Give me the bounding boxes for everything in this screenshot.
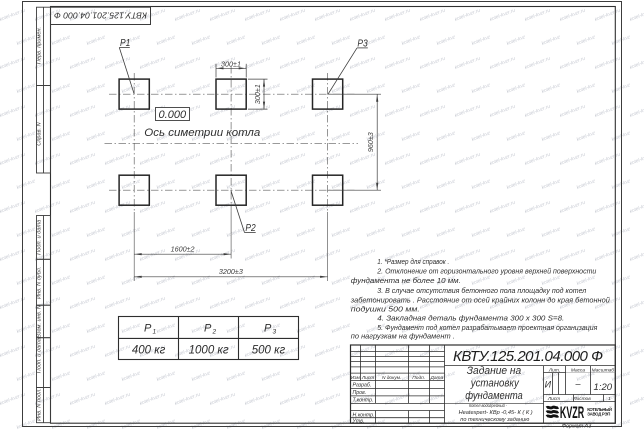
svg-text:2: 2 (212, 329, 217, 336)
svg-text:0.000: 0.000 (159, 109, 187, 121)
svg-text:Разраб.: Разраб. (353, 383, 372, 389)
svg-text:3: 3 (273, 329, 277, 336)
svg-text:Подп. и дата: Подп. и дата (37, 338, 43, 373)
svg-text:Утв.: Утв. (353, 418, 365, 424)
svg-text:Лит.: Лит. (548, 367, 560, 373)
svg-text:Котел водогрейный -: Котел водогрейный - (469, 402, 507, 409)
svg-text:Дата: Дата (429, 375, 443, 381)
svg-text:1000 кг: 1000 кг (189, 345, 229, 357)
svg-text:КВТУ.125.201.04.000 Ф: КВТУ.125.201.04.000 Ф (453, 348, 603, 365)
svg-text:ЗАВОД РЭП: ЗАВОД РЭП (587, 411, 610, 416)
svg-text:установку: установку (470, 378, 519, 390)
svg-text:Лист: Лист (361, 375, 374, 381)
svg-text:Масштаб: Масштаб (592, 367, 615, 373)
svg-text:P1: P1 (120, 38, 130, 49)
svg-text:Лист: Лист (547, 396, 560, 402)
svg-text:Н.контр.: Н.контр. (353, 412, 375, 418)
svg-text:P3: P3 (357, 38, 368, 49)
svg-text:–: – (574, 379, 581, 389)
svg-text:2. Отклонение от горизонтально: 2. Отклонение от горизонтального уровня … (376, 268, 596, 276)
svg-text:Взам. инв. N: Взам. инв. N (37, 304, 43, 338)
svg-text:Изм.: Изм. (351, 375, 361, 381)
svg-text:P2: P2 (245, 223, 256, 234)
svg-text:подушки 500 мм.: подушки 500 мм. (351, 306, 420, 314)
svg-text:1:20: 1:20 (594, 382, 613, 393)
svg-text:забетонировать . Расстояние от: забетонировать . Расстояние от осей край… (350, 296, 610, 304)
svg-text:1: 1 (153, 329, 157, 336)
svg-text:P: P (204, 323, 212, 335)
svg-text:Т.контр.: Т.контр. (353, 398, 374, 404)
svg-text:4. Закладная деталь фундамента: 4. Закладная деталь фундамента 300 x 300… (377, 315, 564, 323)
svg-text:Инв. N дубл.: Инв. N дубл. (37, 267, 43, 299)
svg-text:1. *Размер для справок .: 1. *Размер для справок . (377, 258, 449, 266)
svg-text:1: 1 (608, 396, 611, 402)
svg-text:5. Фундамент под котел разраба: 5. Фундамент под котел разрабатывает про… (377, 324, 597, 332)
svg-text:500 кг: 500 кг (252, 345, 286, 357)
svg-text:И: И (545, 380, 552, 390)
svg-text:Подп. и дата: Подп. и дата (37, 220, 43, 255)
svg-text:400 кг: 400 кг (132, 345, 166, 357)
svg-text:3. В случае отсутствия бетонно: 3. В случае отсутствия бетонного пола пл… (377, 287, 586, 295)
svg-text:Инв. N подл.: Инв. N подл. (37, 388, 43, 421)
svg-text:Перв. примен.: Перв. примен. (37, 27, 43, 64)
svg-text:P: P (144, 323, 152, 335)
svg-text:Справ. N: Справ. N (37, 121, 43, 145)
svg-text:300±1: 300±1 (253, 84, 262, 104)
svg-text:N докум.: N докум. (382, 375, 401, 381)
svg-text:по техническому заданию: по техническому заданию (460, 417, 529, 423)
svg-text:Масса: Масса (571, 367, 586, 373)
svg-text:960±3: 960±3 (366, 132, 375, 152)
svg-text:КВТУ.125.201.04.000 Ф: КВТУ.125.201.04.000 Ф (54, 11, 147, 21)
svg-text:1600±2: 1600±2 (171, 244, 195, 253)
svg-text:P: P (264, 323, 272, 335)
svg-text:фундамента не более 10 мм.: фундамента не более 10 мм. (351, 277, 461, 285)
svg-text:KVZR: KVZR (560, 404, 584, 422)
svg-text:300±1: 300±1 (221, 60, 241, 69)
svg-text:Листов: Листов (572, 396, 591, 402)
svg-text:по нагрузкам на фундамент .: по нагрузкам на фундамент . (351, 333, 455, 341)
svg-text:фундамента: фундамента (465, 390, 523, 402)
svg-text:Пров.: Пров. (353, 390, 367, 396)
svg-text:Задание на: Задание на (467, 365, 522, 377)
svg-text:Ось симетрии котла: Ось симетрии котла (144, 127, 260, 139)
svg-text:Heatexpert- КВр -0,45- К ( К ): Heatexpert- КВр -0,45- К ( К ) (459, 410, 533, 416)
svg-text:3200±3: 3200±3 (219, 267, 243, 276)
svg-text:Подп.: Подп. (412, 375, 425, 381)
svg-text:Формат А3: Формат А3 (562, 424, 592, 430)
